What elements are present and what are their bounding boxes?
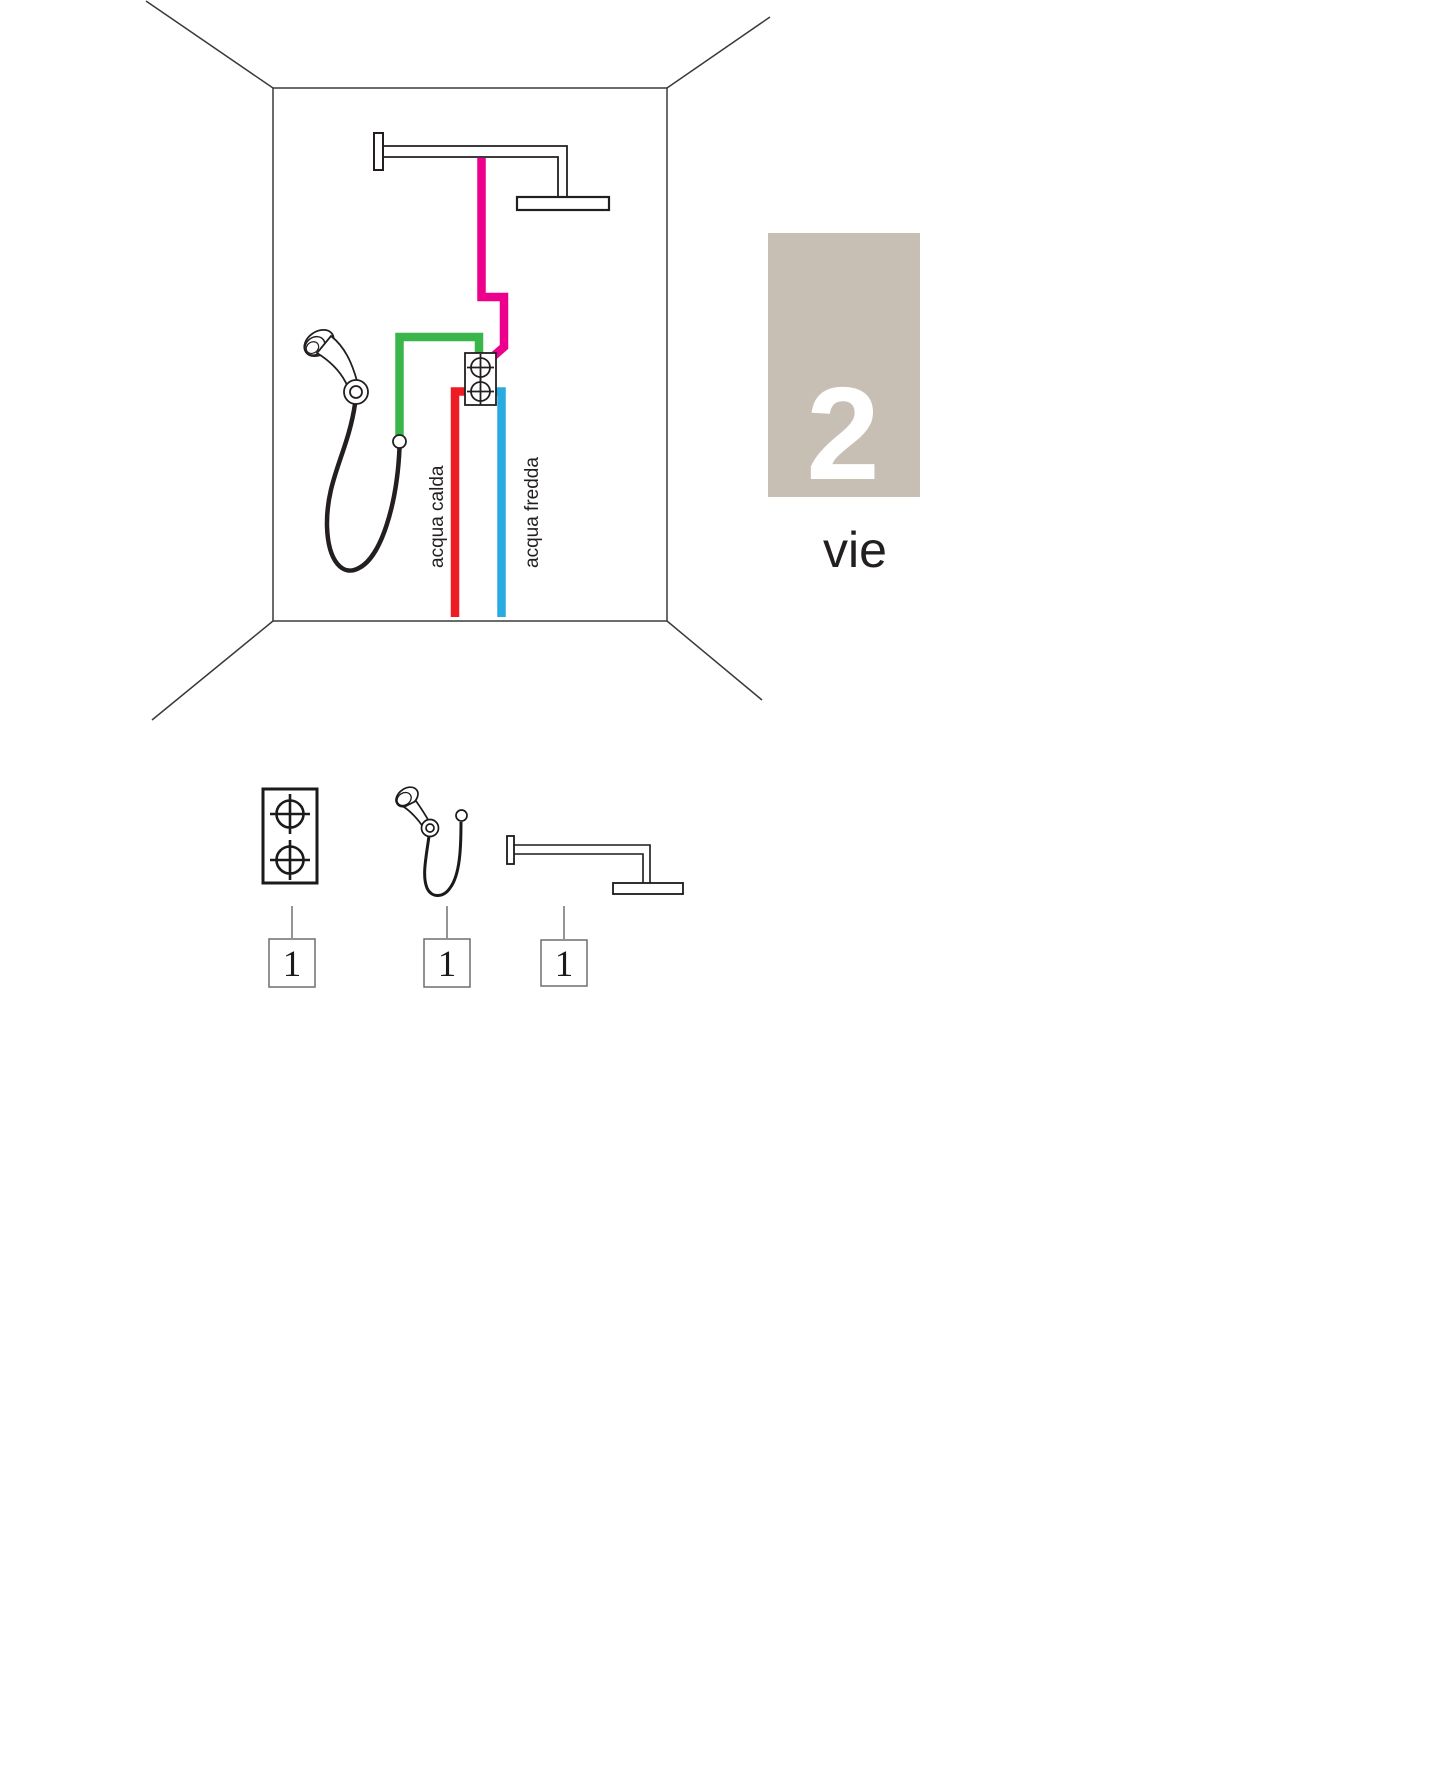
hose-wall-connector [393,435,406,448]
ways-number: 2 [806,360,879,507]
cold-water-label: acqua fredda [522,457,543,568]
bom-mixer-symbol [263,789,317,883]
floor-edge-left [152,621,273,720]
floor-edge-right [667,621,762,700]
ways-unit: vie [823,522,887,578]
arm-wall-flange [374,133,383,170]
hot-water-label: acqua calda [427,465,448,568]
bom-qty-boxes: 1 1 1 [269,939,587,987]
head [613,883,683,894]
bom-leaders [292,906,564,939]
flange [507,836,514,864]
bom-hand-shower-symbol [392,783,467,895]
ceiling-edge-left [146,1,273,88]
qty-mixer: 1 [283,944,302,985]
bom-shower-arm-symbol [507,836,683,894]
ways-badge: 2 vie [768,233,920,578]
installation-diagram-page: acqua calda acqua fredda 2 vie [0,0,1432,1773]
hose-end-ring [456,810,467,821]
ceiling-edge-right [667,17,770,88]
qty-hand-shower: 1 [438,944,457,985]
qty-shower-arm: 1 [555,944,574,985]
rain-shower-head [517,197,609,210]
mixer-valve [465,353,496,405]
